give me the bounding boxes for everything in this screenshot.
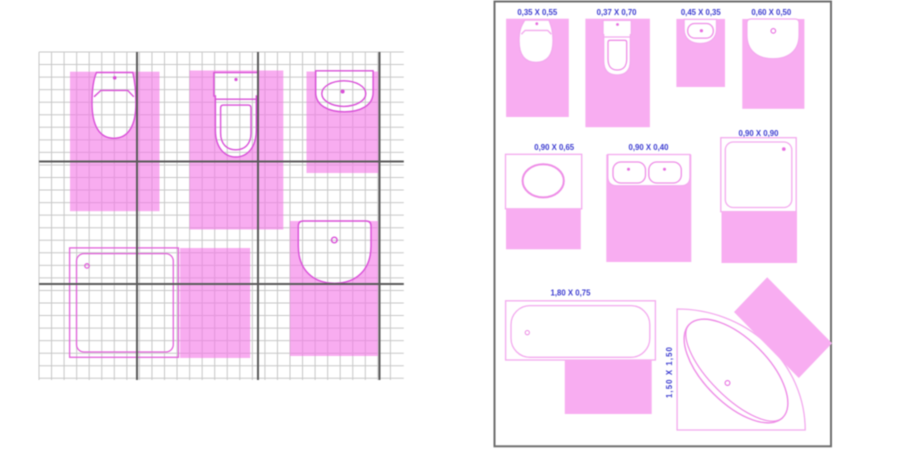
svg-text:0,35 X 0,55: 0,35 X 0,55 (517, 8, 558, 17)
svg-text:0,90 X 0,40: 0,90 X 0,40 (629, 143, 670, 152)
svg-text:0,90 X 0,65: 0,90 X 0,65 (534, 143, 575, 152)
svg-text:1,50 X 1,50: 1,50 X 1,50 (665, 346, 674, 398)
svg-text:1,80 X 0,75: 1,80 X 0,75 (551, 289, 592, 298)
svg-text:0,90 X 0,90: 0,90 X 0,90 (739, 129, 780, 138)
svg-text:0,37 X 0,70: 0,37 X 0,70 (597, 8, 638, 17)
svg-text:0,45 X 0,35: 0,45 X 0,35 (681, 8, 722, 17)
svg-text:0,60 X 0,50: 0,60 X 0,50 (751, 8, 792, 17)
